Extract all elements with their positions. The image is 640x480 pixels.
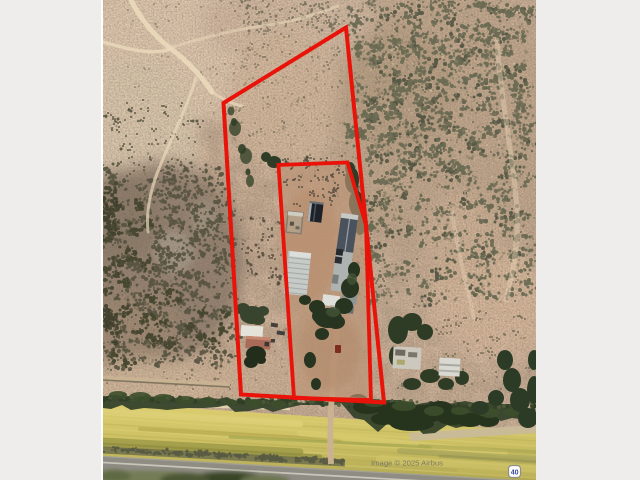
svg-text:40: 40 bbox=[511, 469, 519, 476]
svg-text:Image © 2025 Airbus: Image © 2025 Airbus bbox=[371, 459, 443, 468]
